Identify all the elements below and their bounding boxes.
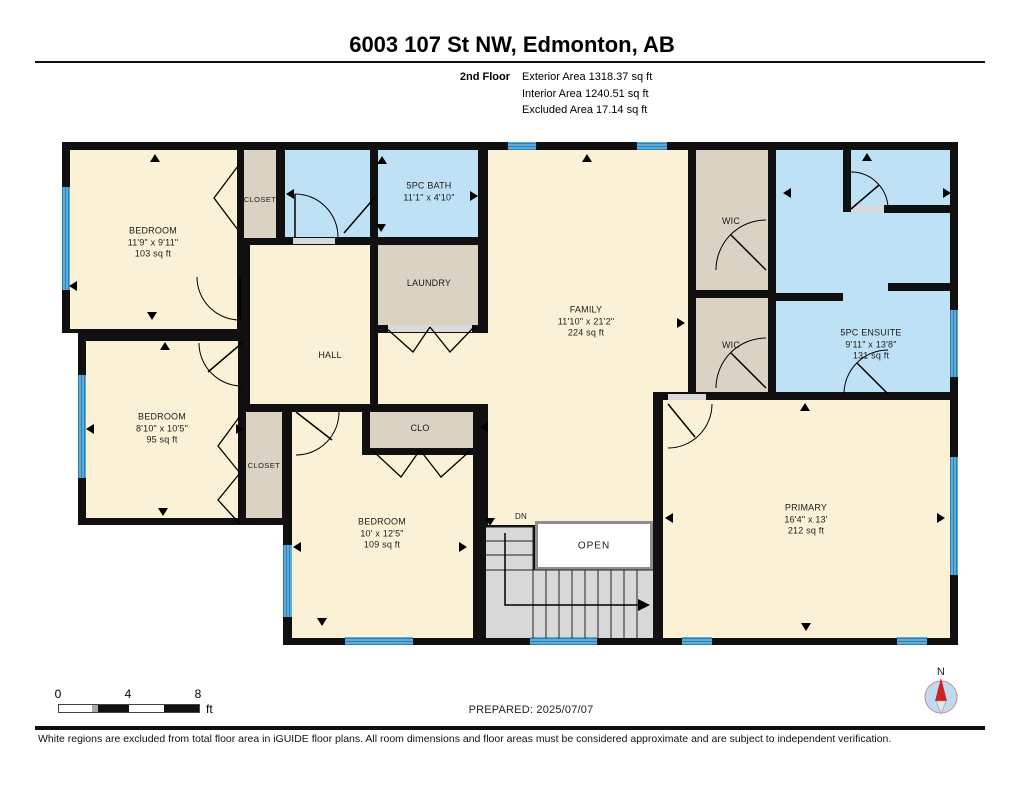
scale-unit: ft [206, 702, 213, 716]
exterior-area: Exterior Area 1318.37 sq ft [522, 71, 652, 83]
room-label: HALL [318, 350, 341, 362]
wall-watercloset-left [843, 150, 851, 212]
door-slab-laundry [388, 325, 472, 332]
wall-ensuite-stub-right [888, 283, 950, 291]
room-label: 5PC BATH11'1" x 4'10" [403, 180, 454, 203]
door-slab-watercloset [851, 206, 884, 212]
room-hall-west [250, 245, 370, 404]
room-label: 5PC ENSUITE9'11" x 13'8"131 sq ft [840, 327, 901, 362]
window [950, 457, 958, 575]
room-label: BEDROOM10' x 12'5"109 sq ft [358, 516, 406, 551]
floor-plan-page: 6003 107 St NW, Edmonton, AB 2nd Floor E… [0, 0, 1024, 791]
room-label: CLOSET [244, 195, 276, 205]
interior-area: Interior Area 1240.51 sq ft [522, 88, 649, 100]
wall-ensuite-stub-left [776, 293, 843, 301]
window [78, 375, 86, 478]
window [682, 637, 712, 645]
window [283, 545, 292, 617]
door-slab-primary [668, 394, 706, 400]
excluded-area: Excluded Area 17.14 sq ft [522, 104, 647, 116]
window [637, 142, 667, 150]
stairs-dn-label: DN [515, 512, 527, 522]
room-label: BEDROOM8'10" x 10'5"95 sq ft [136, 411, 188, 446]
room-hall-east [378, 333, 488, 404]
room-closet-top [244, 150, 276, 238]
prepared-date: PREPARED: 2025/07/07 [469, 703, 594, 717]
window [345, 637, 413, 645]
room-label: CLO [410, 423, 429, 435]
window [897, 637, 927, 645]
room-bath-left [285, 150, 370, 237]
room-label: PRIMARY16'4" x 13'212 sq ft [784, 502, 827, 537]
footer-divider [35, 726, 985, 730]
floor-label: 2nd Floor [400, 71, 510, 83]
stairs-run [486, 570, 653, 638]
stairs-landing [486, 527, 533, 570]
scale-bar [58, 704, 200, 713]
wall-primary-left [653, 392, 663, 645]
compass-north-label: N [937, 665, 945, 679]
room-label: WIC [722, 340, 740, 352]
compass-icon [925, 678, 957, 714]
window [950, 310, 958, 377]
room-label: WIC [722, 216, 740, 228]
wall-watercloset-bottom [884, 205, 950, 213]
header-divider [35, 61, 985, 63]
room-label: BEDROOM11'9" x 9'11"103 sq ft [128, 225, 179, 260]
window [508, 142, 536, 150]
scale-tick: 4 [125, 687, 132, 701]
disclaimer-text: White regions are excluded from total fl… [38, 733, 891, 745]
window [62, 187, 70, 290]
open-label: OPEN [578, 540, 610, 553]
page-title: 6003 107 St NW, Edmonton, AB [0, 32, 1024, 58]
door-slab-bath [293, 238, 335, 244]
scale-tick: 8 [195, 687, 202, 701]
room-label: LAUNDRY [407, 278, 451, 290]
scale-tick: 0 [55, 687, 62, 701]
room-label: FAMILY11'10" x 21'2"224 sq ft [558, 304, 615, 339]
room-label: CLOSET [248, 461, 280, 471]
window [530, 637, 597, 645]
